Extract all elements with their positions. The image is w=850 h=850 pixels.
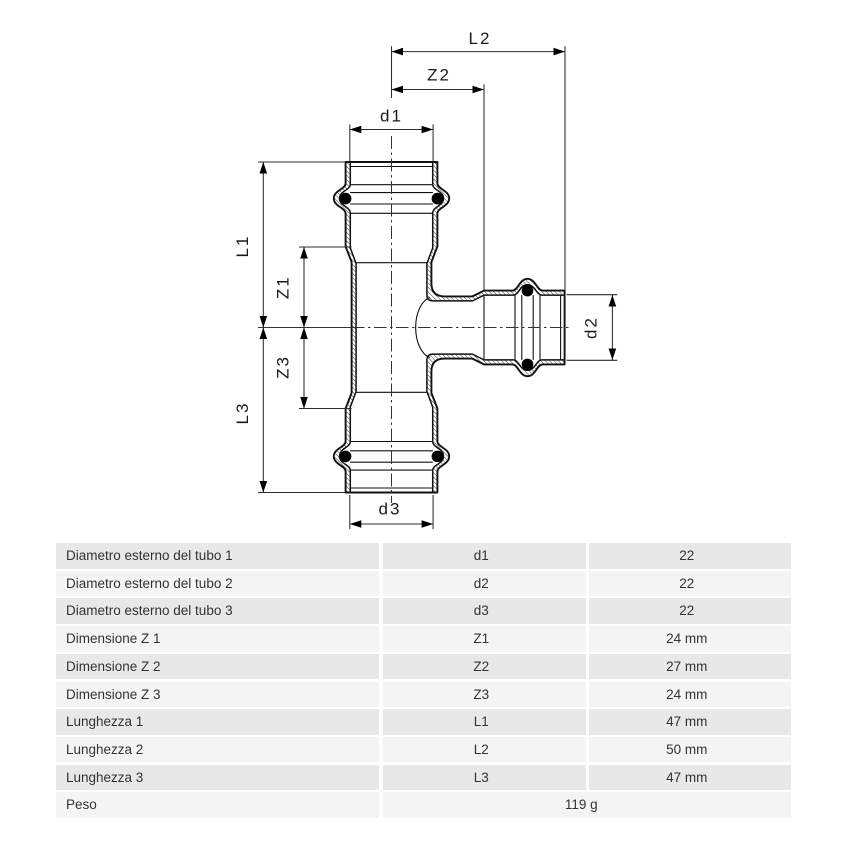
svg-text:Z1: Z1 [274,275,293,299]
svg-text:d3: d3 [379,500,402,519]
svg-text:L2: L2 [469,29,492,48]
svg-text:d1: d1 [380,107,403,126]
svg-text:d2: d2 [582,316,601,339]
svg-text:Z2: Z2 [427,66,451,85]
svg-text:Z3: Z3 [274,355,293,379]
svg-text:L3: L3 [233,402,252,425]
svg-text:L1: L1 [233,235,252,258]
